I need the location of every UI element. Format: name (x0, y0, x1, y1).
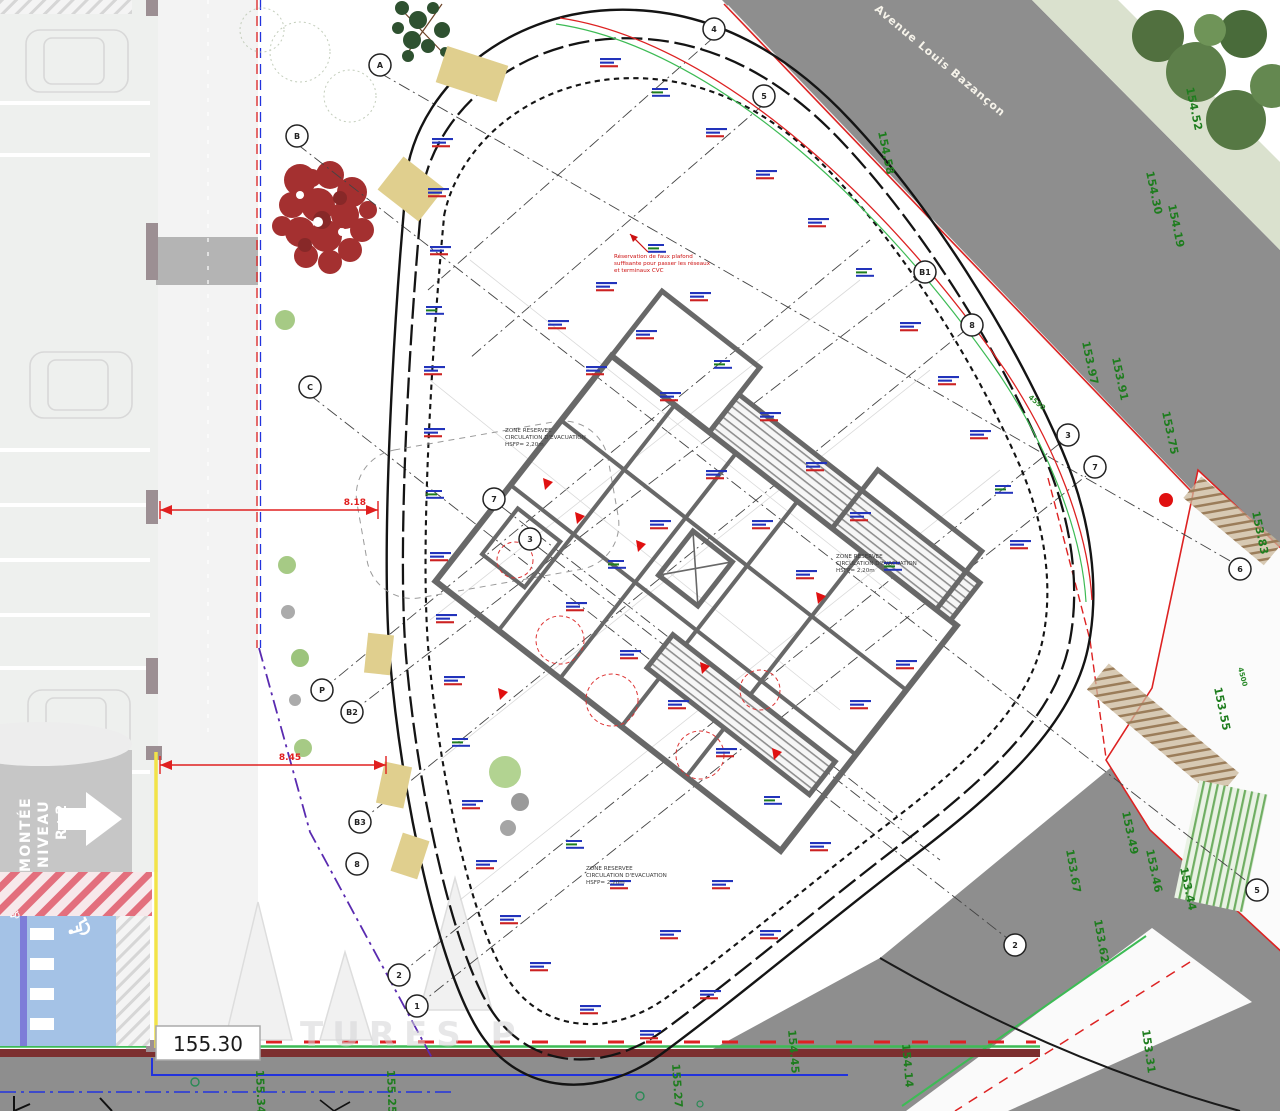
dimension-value-2: 8.45 (279, 753, 301, 763)
zone-dashed-outline (349, 414, 626, 606)
zone-note-line: CIRCULATION D'EVACUATION (586, 873, 667, 879)
grid-bubble-label: P (319, 686, 325, 695)
grid-bubble-label: 7 (1092, 463, 1098, 472)
grid-bubble-label: 2 (396, 971, 402, 980)
grid-bubble-label: 3 (527, 535, 533, 544)
spot-elevation: 155.34 (253, 1070, 268, 1111)
grid-bubble-label: 6 (1237, 565, 1243, 574)
facade-panel-tan (436, 46, 509, 102)
zone-note-line: ZONE RESERVEE (836, 554, 883, 560)
wheelchair-icon-small: ♿ (8, 908, 24, 921)
facade-panel-tan (376, 762, 412, 809)
grid-bubble-label: A (377, 61, 384, 70)
grid-bubble-label: B3 (354, 818, 366, 827)
pmr-purple-stripe (20, 916, 27, 1046)
grid-bubble-label: 5 (761, 92, 767, 101)
grid-bubble-label: 3 (1065, 431, 1071, 440)
zone-note-line: ZONE RESERVEE (505, 428, 552, 434)
zone-note-line: CIRCULATION D'EVACUATION (836, 561, 917, 567)
site-plan-canvas[interactable]: MONTÉE NIVEAU R+2 ♿ ♿ (0, 0, 1280, 1111)
watermark-text: TURES P (300, 1015, 524, 1055)
facade-panel-tan (364, 633, 394, 675)
conifer-tree (392, 1, 450, 62)
ramp-label-montee: MONTÉE (17, 797, 34, 872)
building-core (436, 291, 1008, 851)
spot-elevation: 155.25 (384, 1070, 399, 1111)
grid-bubble-label: 8 (969, 321, 975, 330)
zone-note-3: ZONE RESERVEE CIRCULATION D'EVACUATION H… (586, 866, 667, 886)
existing-red-tree (272, 161, 377, 274)
grid-bubble-label: B (294, 132, 300, 141)
grid-bubble-label: B1 (919, 268, 931, 277)
dimension-value-1: 8.18 (344, 498, 366, 508)
driveway (158, 0, 258, 1056)
red-marker-dot (1159, 493, 1173, 507)
ramp-zone: MONTÉE NIVEAU R+2 ♿ ♿ (0, 722, 152, 1046)
zone-note-line: ZONE RESERVEE (586, 866, 633, 872)
zone-note-line: HSFP= 2,20m (836, 568, 875, 574)
grid-bubble-label: C (307, 383, 313, 392)
grid-bubble-label: 7 (491, 495, 497, 504)
red-note-line: et terminaux CVC (614, 268, 664, 274)
grid-bubble-label: B2 (346, 708, 358, 717)
hatch-strip (116, 916, 150, 1046)
grid-bubble-label: 2 (1012, 941, 1018, 950)
level-box: 155.30 (156, 1026, 260, 1060)
crossing-road-band (156, 237, 258, 285)
ramp-label-level: R+2 (54, 803, 70, 840)
site-plan-drawing: MONTÉE NIVEAU R+2 ♿ ♿ (0, 0, 1280, 1111)
level-value: 155.30 (173, 1032, 243, 1056)
grid-bubble-label: 8 (354, 860, 360, 869)
zone-note-line: HSFP= 2,20m (586, 880, 625, 886)
grid-bubble-label: 1 (414, 1002, 420, 1011)
zone-note-line: HSFP= 2,20m (505, 442, 544, 448)
grid-bubble-label: 5 (1254, 886, 1260, 895)
grid-bubble-label: 4 (711, 25, 717, 34)
red-note-line: Réservation de faux plafond (614, 253, 693, 260)
red-note-line: suffisante pour passer les réseaux (614, 260, 711, 267)
ramp-label-niveau: NIVEAU (36, 800, 52, 868)
ceiling-reservation-note: Réservation de faux plafond suffisante p… (614, 234, 711, 274)
hatch-band (0, 0, 132, 14)
zone-note-line: CIRCULATION D'EVACUATION (505, 435, 586, 441)
